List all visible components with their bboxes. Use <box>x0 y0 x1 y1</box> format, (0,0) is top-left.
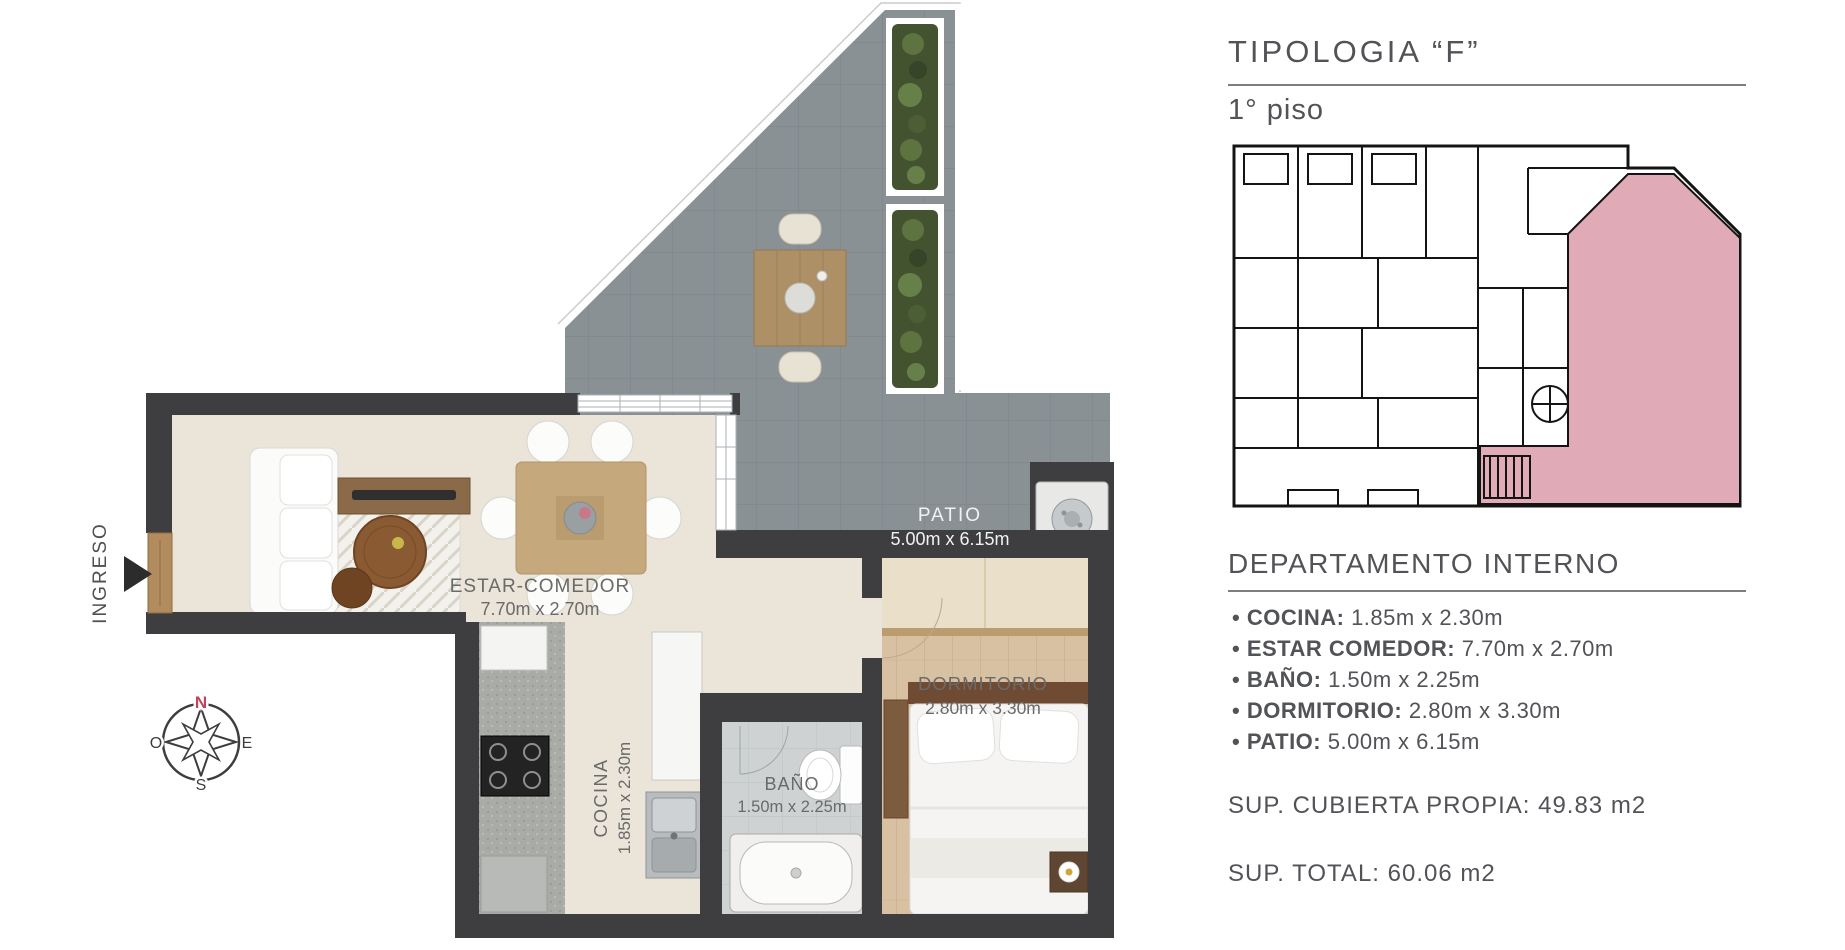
plate <box>785 283 815 313</box>
kitchen-cabinet <box>481 856 547 912</box>
patio-stool <box>779 352 821 382</box>
kitchen-sink <box>646 792 702 878</box>
room-dims: 7.70m x 2.70m <box>1462 636 1614 661</box>
stove <box>481 736 549 796</box>
bedroom-dims: 2.80m x 3.30m <box>925 698 1041 718</box>
living-room-label: ESTAR-COMEDOR <box>450 576 630 597</box>
room-name: ESTAR COMEDOR: <box>1247 636 1455 661</box>
tv <box>352 490 456 500</box>
building-key-plan <box>1228 138 1746 516</box>
room-name: BAÑO: <box>1247 667 1322 692</box>
floor-plan: INGRESO ESTAR-COMEDOR 7.70m x 2.70m COCI… <box>0 0 1150 950</box>
total-surface-line: SUP. TOTAL: 60.06 m2 <box>1228 860 1496 888</box>
list-item-cocina: COCINA: 1.85m x 2.30m <box>1232 602 1614 633</box>
compass-s: S <box>196 777 207 794</box>
nightstand <box>1050 852 1088 892</box>
title-divider <box>1228 84 1746 86</box>
dresser <box>884 700 908 818</box>
section-heading: DEPARTAMENTO INTERNO <box>1228 548 1620 580</box>
floor-plan-drawing: INGRESO ESTAR-COMEDOR 7.70m x 2.70m COCI… <box>0 0 1150 950</box>
living-window <box>716 415 736 530</box>
kitchen-label: COCINA <box>591 758 611 837</box>
room-name: COCINA: <box>1247 605 1345 630</box>
room-dims: 1.85m x 2.30m <box>1351 605 1503 630</box>
living-room-dims: 7.70m x 2.70m <box>480 599 599 619</box>
compass-rose-icon: N E S O <box>150 693 253 794</box>
room-dimension-list: COCINA: 1.85m x 2.30m ESTAR COMEDOR: 7.7… <box>1232 602 1614 757</box>
kitchen-dims: 1.85m x 2.30m <box>615 742 634 854</box>
floorplan-sheet: INGRESO ESTAR-COMEDOR 7.70m x 2.70m COCI… <box>0 0 1845 950</box>
room-name: DORMITORIO: <box>1247 698 1402 723</box>
compass-e: E <box>242 735 253 752</box>
bedroom-label: DORMITORIO <box>918 673 1048 694</box>
bedroom-wardrobe <box>882 558 1088 636</box>
patio-label: PATIO <box>918 505 982 526</box>
sofa <box>250 448 338 614</box>
list-item-bano: BAÑO: 1.50m x 2.25m <box>1232 664 1614 695</box>
covered-surface-line: SUP. CUBIERTA PROPIA: 49.83 m2 <box>1228 792 1646 820</box>
room-dims: 5.00m x 6.15m <box>1328 729 1480 754</box>
floor-subtitle: 1° piso <box>1228 94 1324 127</box>
list-item-estar-comedor: ESTAR COMEDOR: 7.70m x 2.70m <box>1232 633 1614 664</box>
room-name: PATIO: <box>1247 729 1321 754</box>
bathroom-label: BAÑO <box>764 773 819 794</box>
list-item-patio: PATIO: 5.00m x 6.15m <box>1232 726 1614 757</box>
list-item-dormitorio: DORMITORIO: 2.80m x 3.30m <box>1232 695 1614 726</box>
section-divider <box>1228 590 1746 592</box>
room-dims: 2.80m x 3.30m <box>1409 698 1561 723</box>
tv-console <box>338 478 470 514</box>
compass-n: N <box>195 693 207 712</box>
compass-o: O <box>150 735 162 752</box>
patio-planters <box>886 18 944 394</box>
kitchen-counter <box>481 626 547 670</box>
room-dims: 1.50m x 2.25m <box>1328 667 1480 692</box>
entrance: INGRESO <box>90 522 172 624</box>
bathroom-dims: 1.50m x 2.25m <box>737 798 846 816</box>
ingreso-label: INGRESO <box>90 522 111 624</box>
bathtub <box>730 834 862 912</box>
patio-dims: 5.00m x 6.15m <box>890 529 1009 549</box>
fridge-counter <box>652 632 702 780</box>
patio-stool <box>779 214 821 244</box>
patio-sliding-door <box>578 395 732 412</box>
bedroom-door-opening <box>862 598 882 658</box>
typology-title: TIPOLOGIA “F” <box>1228 34 1481 70</box>
centerpiece <box>579 507 591 519</box>
